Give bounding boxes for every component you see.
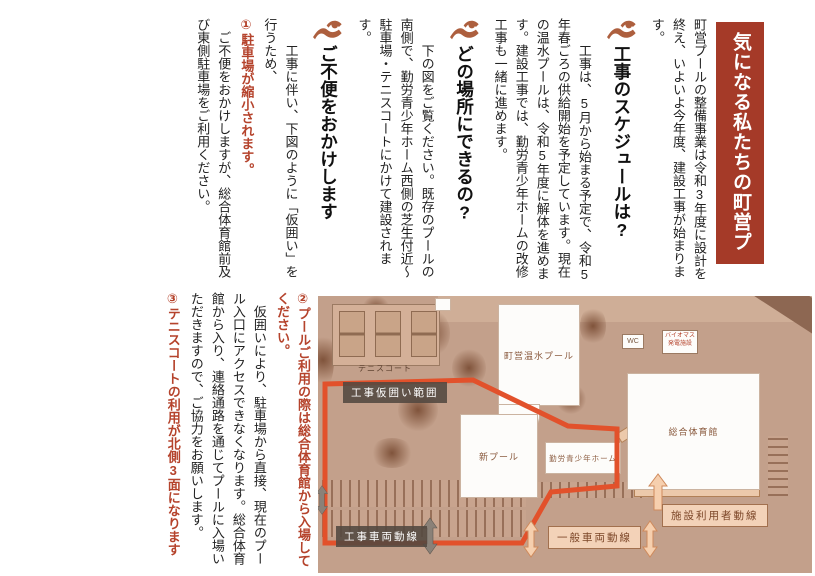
notice-1-heading: ①駐車場が縮小されます。 bbox=[236, 18, 257, 286]
swimmer-icon bbox=[607, 18, 637, 40]
section-heading-inconvenience: ご不便をおかけします bbox=[313, 18, 343, 286]
construction-vehicles-label: 工事車両動線 bbox=[336, 526, 427, 547]
section-body-schedule: 工事は、5月から始まる予定で、令和5年春ごろの供給開始を予定しています。現在の温… bbox=[490, 18, 595, 286]
section-body-inconvenience: 工事に伴い、下図のように「仮囲い」を行うため、 bbox=[259, 18, 301, 286]
facility-users-label: 施設利用者動線 bbox=[662, 504, 768, 527]
section-heading-text: どの場所にできるの? bbox=[455, 45, 475, 223]
swimmer-icon bbox=[313, 18, 343, 40]
section-heading-location: どの場所にできるの? bbox=[450, 18, 480, 286]
general-vehicles-label: 一般車両動線 bbox=[548, 526, 641, 549]
fence-range-label: 工事仮囲い範囲 bbox=[343, 382, 447, 403]
notice-3-heading: ③テニスコートの利用が北側3面になります bbox=[163, 292, 184, 572]
construction-fence-outline bbox=[325, 380, 617, 543]
page-title: 気になる私たちの町営プール bbox=[716, 22, 764, 264]
general-vehicle-arrow-icon bbox=[643, 521, 657, 557]
section-heading-text: 工事のスケジュールは? bbox=[612, 45, 632, 240]
site-map: テニスコート 町営温水プール 総合体育館 新プール 勤労青少年ホーム WC バイ… bbox=[318, 296, 812, 573]
section-body-location: 下の図をご覧ください。既存のプールの南側で、勤労青少年ホーム西側の芝生付近〜駐車… bbox=[353, 18, 437, 286]
section-heading-text: ご不便をおかけします bbox=[318, 45, 338, 220]
notice-1-body: ご不便をおかけしますが、総合体育館前及び東側駐車場をご利用ください。 bbox=[192, 18, 234, 286]
wc-label: WC bbox=[627, 338, 639, 345]
biomass-label: バイオマス bbox=[663, 333, 697, 341]
biomass-label: 発電施設 bbox=[663, 341, 697, 349]
intro-paragraph: 町営プールの整備事業は令和3年度に設計を終え、いよいよ今年度、建設工事が始まりま… bbox=[647, 18, 710, 286]
section-heading-schedule: 工事のスケジュールは? bbox=[607, 18, 637, 286]
secondary-article: ②プールご利用の際は総合体育館から入場してください。 仮囲いにより、駐車場から直… bbox=[88, 292, 316, 572]
notice-2-body: 仮囲いにより、駐車場から直接、現在のプール入口にアクセスできなくなります。総合体… bbox=[186, 292, 270, 572]
flyer-page: 気になる私たちの町営プール 町営プールの整備事業は令和3年度に設計を終え、いよい… bbox=[0, 0, 815, 576]
wc-box: WC bbox=[622, 334, 644, 349]
main-article: 町営プールの整備事業は令和3年度に設計を終え、いよいよ今年度、建設工事が始まりま… bbox=[20, 18, 712, 286]
swimmer-icon bbox=[450, 18, 480, 40]
notice-2-heading: ②プールご利用の際は総合体育館から入場してください。 bbox=[272, 292, 314, 572]
biomass-box: バイオマス 発電施設 bbox=[662, 330, 698, 354]
